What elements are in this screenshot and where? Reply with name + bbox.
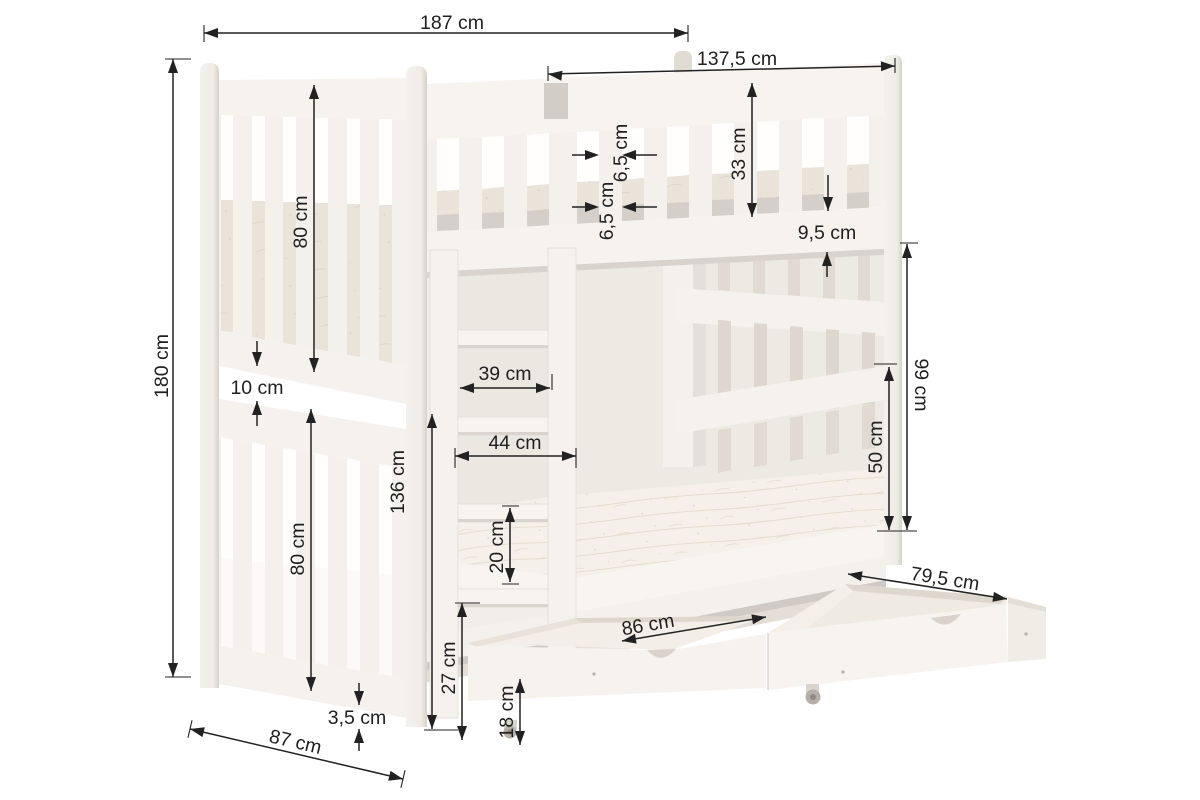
svg-text:39 cm: 39 cm: [478, 363, 531, 385]
svg-text:136 cm: 136 cm: [387, 450, 409, 514]
svg-text:9,5 cm: 9,5 cm: [798, 222, 857, 244]
svg-text:6,5 cm: 6,5 cm: [596, 182, 618, 241]
svg-text:80 cm: 80 cm: [290, 195, 312, 248]
svg-text:187 cm: 187 cm: [420, 12, 484, 34]
svg-text:44 cm: 44 cm: [488, 432, 541, 454]
svg-text:180 cm: 180 cm: [151, 334, 173, 398]
svg-text:33 cm: 33 cm: [728, 127, 750, 180]
svg-text:99 cm: 99 cm: [910, 358, 932, 411]
svg-text:6,5 cm: 6,5 cm: [610, 124, 632, 183]
svg-text:137,5 cm: 137,5 cm: [697, 48, 777, 70]
svg-text:3,5 cm: 3,5 cm: [328, 707, 387, 729]
svg-text:18 cm: 18 cm: [496, 685, 518, 738]
svg-text:20 cm: 20 cm: [486, 520, 508, 573]
svg-text:27 cm: 27 cm: [438, 641, 460, 694]
svg-text:10 cm: 10 cm: [230, 377, 283, 399]
svg-text:50 cm: 50 cm: [865, 420, 887, 473]
svg-text:80 cm: 80 cm: [287, 522, 309, 575]
